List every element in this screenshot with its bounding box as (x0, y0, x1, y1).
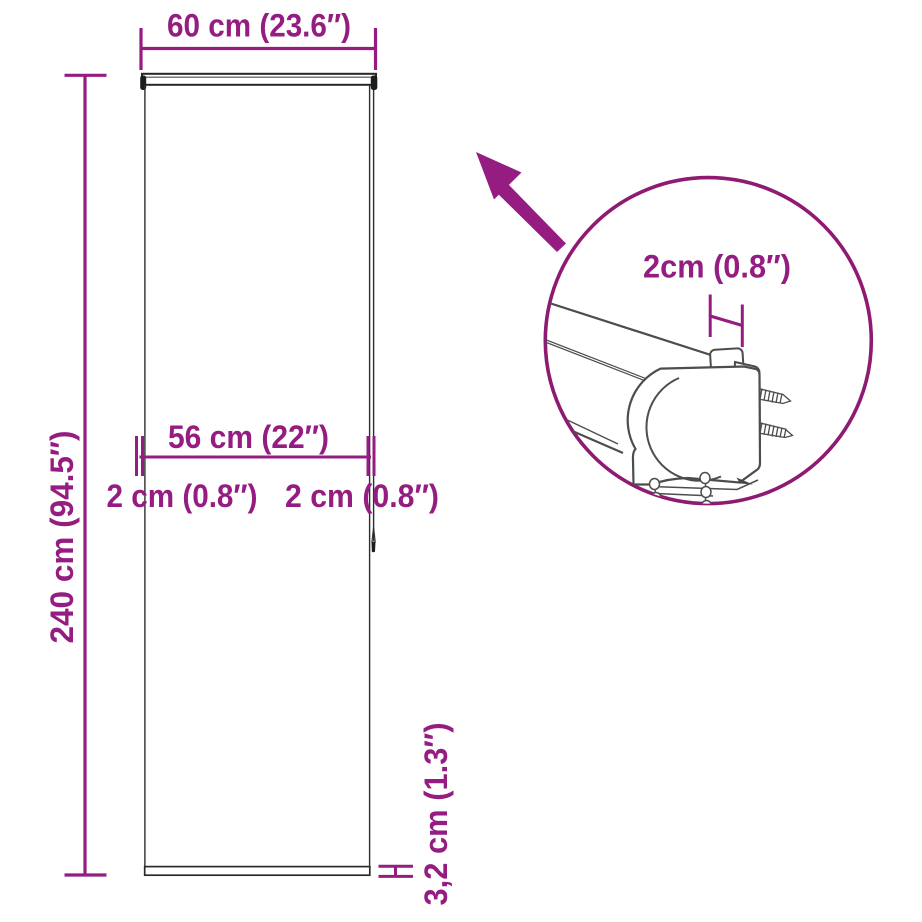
svg-text:2cm (0.8″): 2cm (0.8″) (643, 249, 791, 285)
svg-text:2 cm (0.8″): 2 cm (0.8″) (107, 478, 258, 514)
svg-text:3,2 cm (1.3″): 3,2 cm (1.3″) (418, 723, 454, 906)
svg-text:240 cm (94.5″): 240 cm (94.5″) (44, 431, 80, 644)
svg-text:2 cm (0.8″): 2 cm (0.8″) (285, 478, 439, 514)
svg-text:60 cm (23.6″): 60 cm (23.6″) (167, 8, 351, 44)
svg-text:56 cm (22″): 56 cm (22″) (168, 419, 329, 455)
